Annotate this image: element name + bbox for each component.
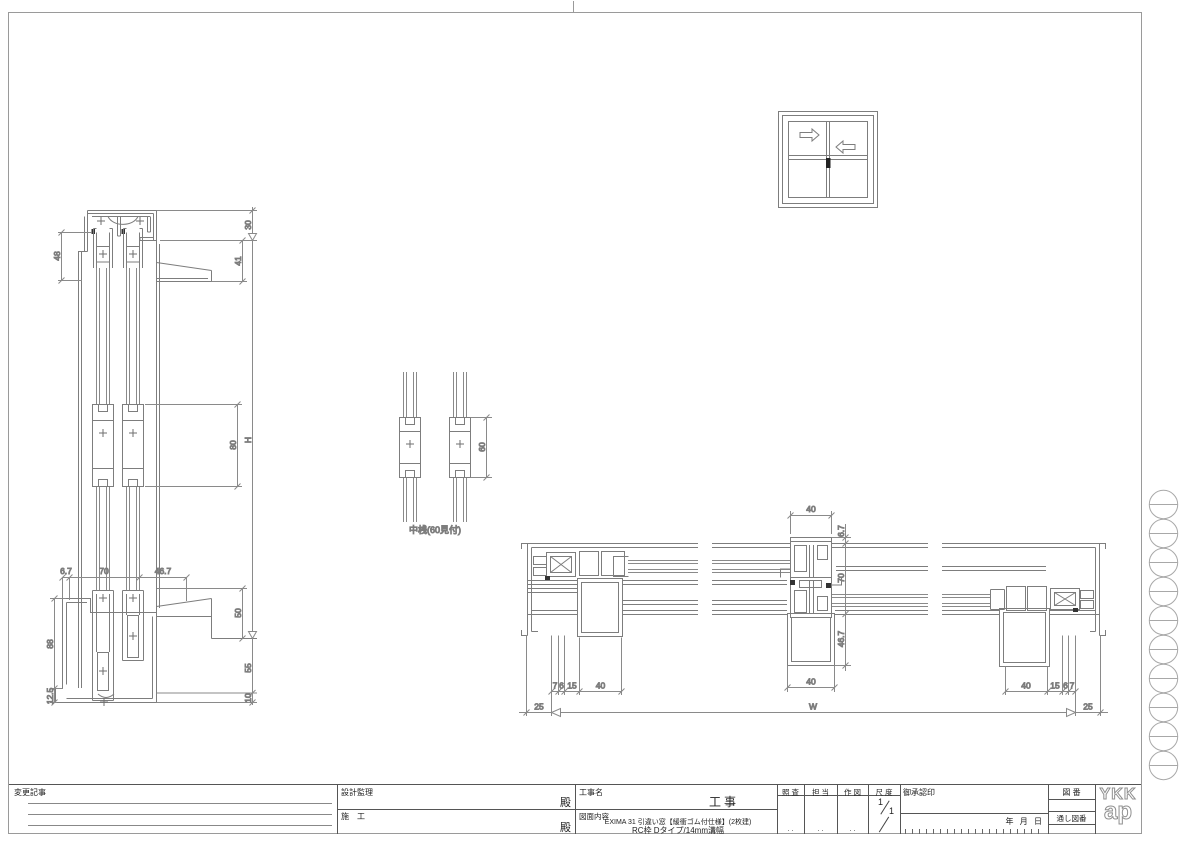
scale-numerator: 1 xyxy=(878,797,883,807)
tb-divider xyxy=(337,809,575,810)
scale-label: 尺 度 xyxy=(868,787,900,798)
window-elevation-icon xyxy=(779,112,878,208)
dim-vs-41: 41 xyxy=(233,256,243,266)
dim-hs-40-top: 40 xyxy=(806,504,816,514)
title-block: 変更記事 設計監理 殿 施 工 殿 工事名 工事 図面内容 EXIMA 31 引… xyxy=(9,784,1141,834)
change-notes-rule xyxy=(28,803,332,804)
tb-divider xyxy=(1048,799,1095,800)
charge-placeholder: . . xyxy=(804,826,837,833)
serial-number-label: 通し図番 xyxy=(1048,813,1095,824)
tb-divider xyxy=(1048,811,1095,812)
dim-vs-48: 48 xyxy=(52,251,62,261)
dim-hs-46-7: 46.7 xyxy=(836,630,846,647)
dim-vs-10: 10 xyxy=(243,693,253,703)
wall-and-trim xyxy=(73,241,257,689)
dim-hs-40-left: 40 xyxy=(596,681,606,691)
design-supervision-label: 設計監理 xyxy=(341,787,373,798)
dim-vs-30: 30 xyxy=(243,220,253,230)
date-label: 年 月 日 xyxy=(984,816,1044,827)
horizontal-section: 40 6.7 70 46.7 40 7 6 15 40 40 15 6 7 25… xyxy=(519,504,1108,717)
meeting-stile-profile xyxy=(781,538,842,666)
change-notes-rule xyxy=(28,825,332,826)
dim-hs-25-left: 25 xyxy=(534,702,544,712)
dono-label: 殿 xyxy=(545,794,571,810)
check-label: 照 査 xyxy=(777,787,804,798)
dim-vs-12-5: 12.5 xyxy=(45,687,55,704)
tb-divider xyxy=(900,813,1048,814)
sheet-border xyxy=(9,1,1142,834)
change-notes-label: 変更記事 xyxy=(14,787,46,798)
change-notes-rule xyxy=(28,814,332,815)
dono-label: 殿 xyxy=(545,819,571,835)
middle-rails xyxy=(93,405,144,487)
slide-right-arrow-icon xyxy=(800,129,819,141)
dim-hs-6-7: 6.7 xyxy=(836,525,846,537)
approval-tick-marks xyxy=(905,829,1045,834)
crescent-lock-mark xyxy=(826,158,831,168)
dim-hs-15-left: 15 xyxy=(567,681,577,691)
dim-vs-55: 55 xyxy=(243,663,253,673)
dim-hs-7-right: 7 xyxy=(1070,681,1075,691)
drawing-number-label: 図 番 xyxy=(1048,787,1095,798)
sill-profile xyxy=(56,599,157,703)
dim-hs-70: 70 xyxy=(836,573,846,583)
binding-holes-strip xyxy=(1149,490,1177,779)
dim-vs-h: H xyxy=(243,437,253,443)
dim-hs-25-right: 25 xyxy=(1083,702,1093,712)
mullion-caption: 中桟(60見付) xyxy=(409,524,461,535)
sash-bottom-rails xyxy=(93,591,144,701)
scale-slash-2 xyxy=(879,817,889,833)
dim-vs-6-7: 6.7 xyxy=(60,566,72,576)
mullion-detail: 60 中桟(60見付) xyxy=(400,372,493,535)
tb-divider xyxy=(900,785,901,834)
cad-drawing: 48 30 41 80 H 6.7 70 46.7 88 12.5 50 55 … xyxy=(0,0,1181,843)
dim-hs-6-right: 6 xyxy=(1063,681,1068,691)
dim-hs-7-left: 7 xyxy=(553,681,558,691)
dim-vs-46-7: 46.7 xyxy=(155,566,172,576)
drawing-content-line2: RC枠 Dタイプ/14mm溝幅 xyxy=(579,825,777,836)
dim-vs-80: 80 xyxy=(228,440,238,450)
approval-label: 御承認印 xyxy=(903,787,935,798)
head-frame-profile xyxy=(78,211,157,252)
ykk-ap-logo: YKK ap xyxy=(1095,785,1141,834)
tb-divider xyxy=(575,809,777,810)
dim-md-60: 60 xyxy=(477,442,487,452)
dim-vs-70: 70 xyxy=(99,566,109,576)
dim-hs-w: W xyxy=(809,702,817,712)
left-jamb-profile xyxy=(522,544,629,637)
dim-hs-40-bottom: 40 xyxy=(806,677,816,687)
binding-hole-circles xyxy=(1149,490,1177,779)
project-name-label: 工事名 xyxy=(579,787,603,798)
dim-vs-50: 50 xyxy=(233,608,243,618)
slide-left-arrow-icon xyxy=(836,141,855,153)
check-placeholder: . . xyxy=(777,826,804,833)
dim-vs-88: 88 xyxy=(45,639,55,649)
tb-divider xyxy=(1048,824,1095,825)
charge-label: 担 当 xyxy=(804,787,837,798)
logo-ap-text: ap xyxy=(1095,801,1141,823)
draft-placeholder: . . xyxy=(837,826,868,833)
right-jamb-profile xyxy=(991,544,1106,667)
construction-label: 施 工 xyxy=(341,811,365,822)
dim-hs-6-left: 6 xyxy=(559,681,564,691)
drawing-sheet: 48 30 41 80 H 6.7 70 46.7 88 12.5 50 55 … xyxy=(0,0,1181,843)
project-name-suffix: 工事 xyxy=(709,793,739,810)
draft-label: 作 図 xyxy=(837,787,868,798)
dim-hs-40-right: 40 xyxy=(1021,681,1031,691)
vertical-section: 48 30 41 80 H 6.7 70 46.7 88 12.5 50 55 … xyxy=(45,207,257,706)
scale-denominator: 1 xyxy=(889,806,894,816)
dim-hs-15-right: 15 xyxy=(1050,681,1060,691)
